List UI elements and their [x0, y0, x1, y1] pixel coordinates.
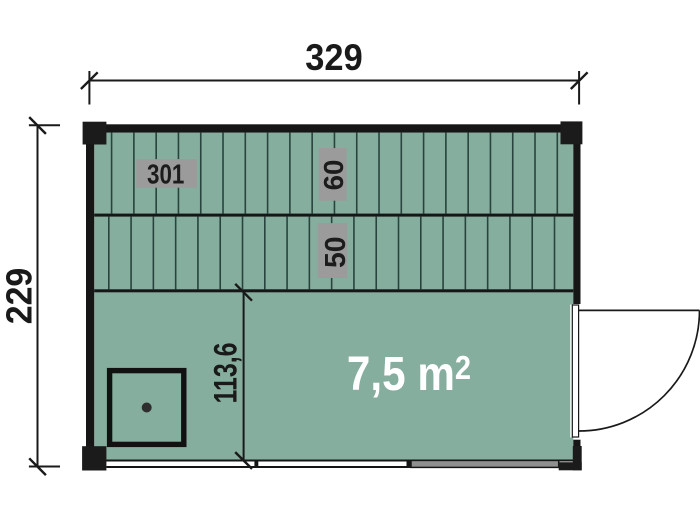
- svg-text:60: 60: [318, 160, 349, 191]
- svg-text:229: 229: [0, 268, 40, 324]
- svg-text:301: 301: [147, 159, 184, 190]
- svg-text:7,5 m2: 7,5 m2: [347, 346, 471, 400]
- svg-text:113,6: 113,6: [208, 342, 244, 403]
- svg-text:50: 50: [320, 236, 352, 268]
- svg-text:329: 329: [305, 37, 362, 78]
